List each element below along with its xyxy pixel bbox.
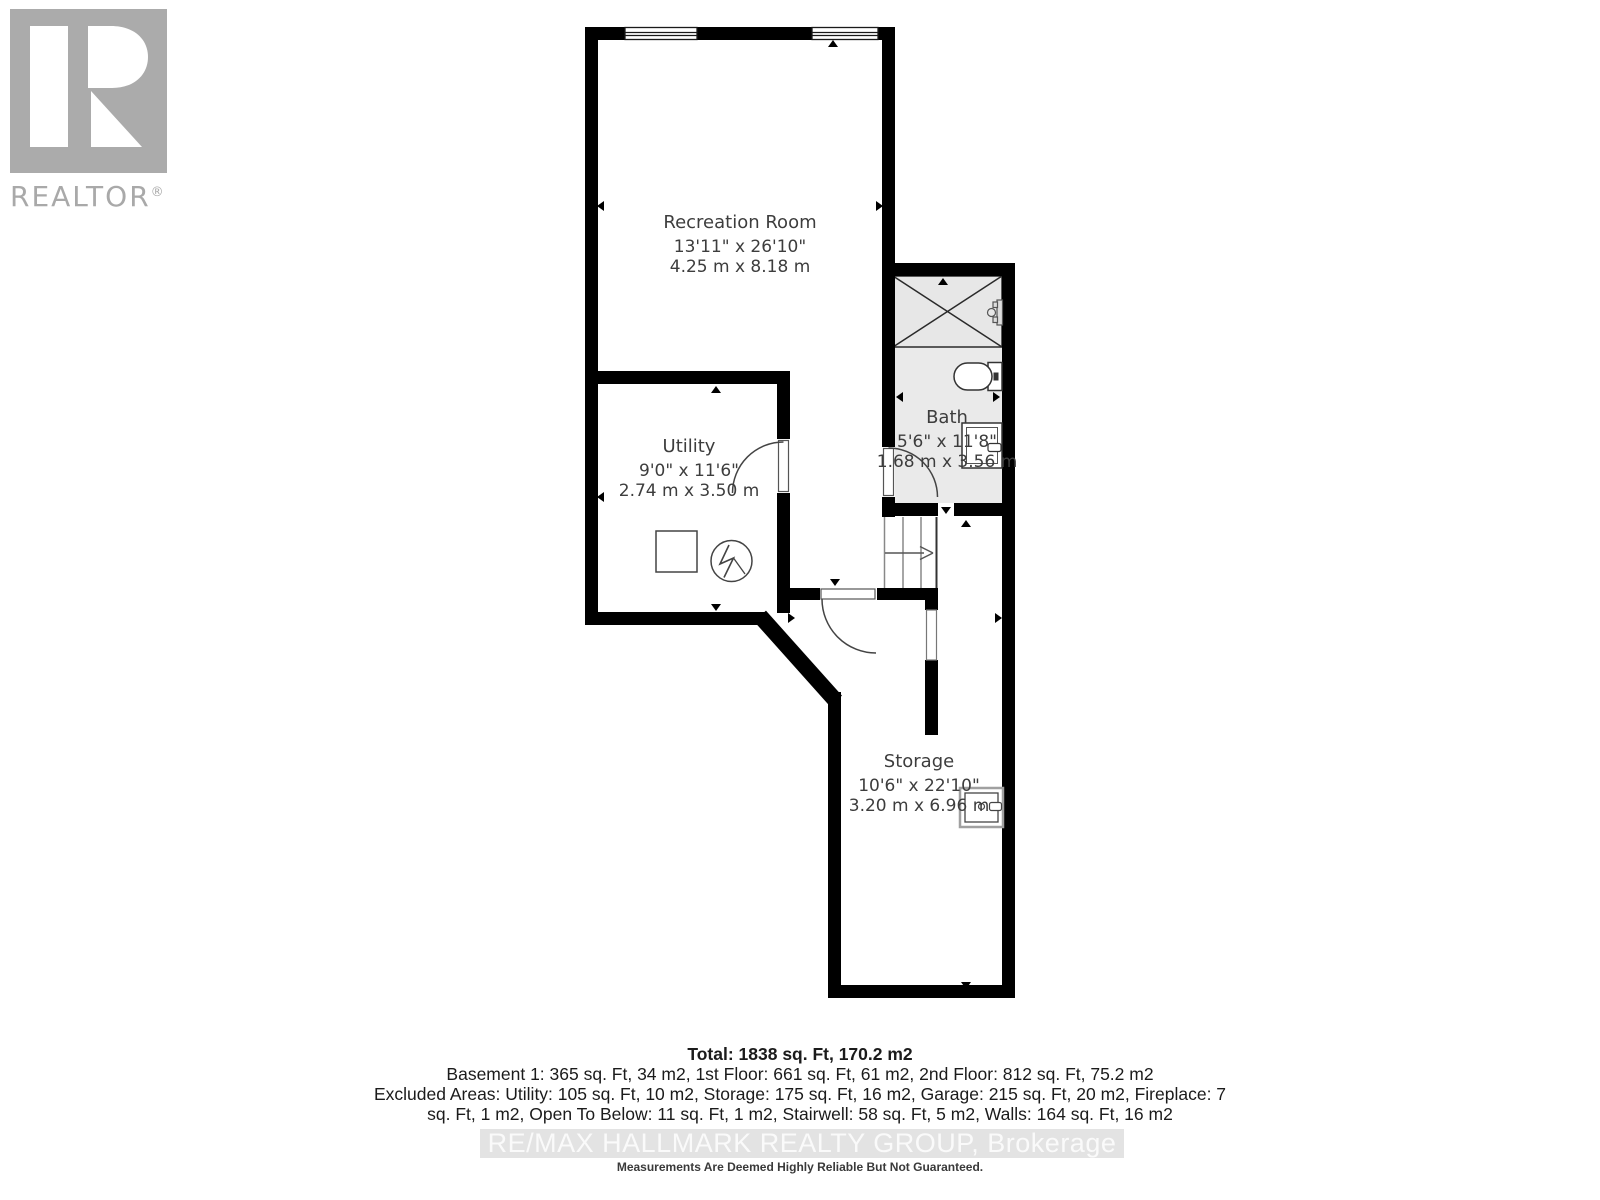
measure-arrow-up — [711, 386, 721, 393]
wall-utility-right-lower — [777, 493, 790, 613]
wall-stub-upper — [925, 600, 938, 610]
area-summary: Total: 1838 sq. Ft, 170.2 m2 Basement 1:… — [0, 1044, 1600, 1124]
room-name: Utility — [619, 436, 760, 458]
floorplan-page: REALTOR® — [0, 0, 1600, 1200]
measurement-disclaimer: Measurements Are Deemed Highly Reliable … — [0, 1160, 1600, 1174]
wall-right — [1002, 263, 1015, 998]
room-dim-metric: 3.20 m x 6.96 m — [849, 796, 990, 816]
room-dim-imperial: 10'6" x 22'10" — [849, 776, 990, 796]
room-label-bath: Bath 5'6" x 11'8" 1.68 m x 3.56 m — [877, 407, 1018, 472]
wall-storage-bottom — [828, 985, 1015, 998]
wall-left — [585, 27, 598, 625]
measure-arrow-right — [788, 613, 795, 623]
wall-utility-bottom — [585, 612, 765, 625]
wall-utility-top — [585, 371, 790, 384]
measure-arrow-right — [876, 201, 883, 211]
storage-hall-door-icon — [820, 588, 877, 653]
room-dim-metric: 1.68 m x 3.56 m — [877, 452, 1018, 472]
wall-diagonal — [760, 616, 836, 701]
room-dim-imperial: 13'11" x 26'10" — [663, 237, 816, 257]
wall-hall-right — [877, 588, 938, 600]
excluded-areas-line-2: sq. Ft, 1 m2, Open To Below: 11 sq. Ft, … — [0, 1104, 1600, 1124]
room-dim-metric: 4.25 m x 8.18 m — [663, 257, 816, 277]
room-dim-imperial: 5'6" x 11'8" — [877, 432, 1018, 452]
window-icon — [625, 28, 697, 40]
floor-areas-line: Basement 1: 365 sq. Ft, 34 m2, 1st Floor… — [0, 1064, 1600, 1084]
window-icon — [812, 28, 878, 40]
wall-storage-left — [828, 692, 841, 998]
measure-arrow-left — [597, 201, 604, 211]
floorplan-drawing — [0, 0, 1600, 1200]
measure-arrow-up — [961, 520, 971, 527]
brokerage-watermark: RE/MAX HALLMARK REALTY GROUP, Brokerage — [480, 1129, 1124, 1158]
room-name: Bath — [877, 407, 1018, 429]
room-label-storage: Storage 10'6" x 22'10" 3.20 m x 6.96 m — [849, 751, 990, 816]
water-tank-icon — [656, 531, 697, 572]
measure-arrow-up — [828, 40, 838, 47]
room-label-recreation: Recreation Room 13'11" x 26'10" 4.25 m x… — [663, 212, 816, 277]
measure-arrow-down — [830, 579, 840, 586]
storage-opening-door-icon — [927, 610, 937, 660]
room-name: Storage — [849, 751, 990, 773]
measure-arrow-left — [597, 492, 604, 502]
measure-arrow-right — [995, 613, 1002, 623]
shower-stall-icon — [893, 276, 1002, 347]
room-label-utility: Utility 9'0" x 11'6" 2.74 m x 3.50 m — [619, 436, 760, 501]
wall-bath-top — [882, 263, 1014, 276]
wall-stub-lower — [925, 660, 938, 735]
room-name: Recreation Room — [663, 212, 816, 234]
electrical-panel-icon — [711, 541, 752, 582]
wall-hall-left — [790, 588, 820, 600]
walls — [585, 27, 1015, 998]
room-dim-imperial: 9'0" x 11'6" — [619, 461, 760, 481]
room-dim-metric: 2.74 m x 3.50 m — [619, 481, 760, 501]
measure-arrow-down — [711, 604, 721, 611]
staircase-icon — [885, 517, 937, 588]
brokerage-watermark-text: RE/MAX HALLMARK REALTY GROUP, Brokerage — [488, 1128, 1117, 1159]
excluded-areas-line-1: Excluded Areas: Utility: 105 sq. Ft, 10 … — [0, 1084, 1600, 1104]
wall-utility-right-upper — [777, 371, 790, 439]
total-area-line: Total: 1838 sq. Ft, 170.2 m2 — [0, 1044, 1600, 1064]
toilet-icon — [954, 363, 1002, 391]
wall-recreation-right — [882, 27, 895, 447]
